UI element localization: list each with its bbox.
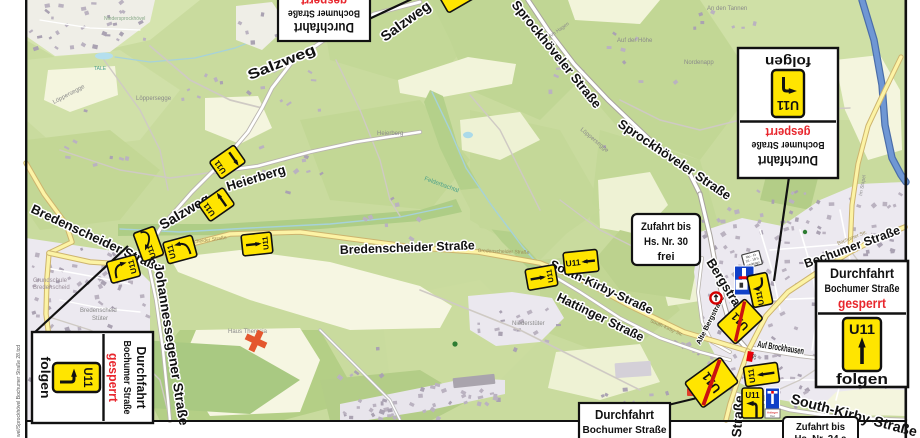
svg-text:Bochumer Straße: Bochumer Straße [121, 341, 133, 415]
svg-text:Bredenscheid: Bredenscheid [80, 308, 117, 314]
svg-text:U11: U11 [260, 236, 270, 250]
svg-text:folgen: folgen [765, 54, 811, 70]
svg-text:Durchfahrt: Durchfahrt [595, 408, 655, 422]
svg-text:U11: U11 [777, 98, 799, 112]
svg-text:U11: U11 [745, 391, 760, 400]
svg-text:gesperrt: gesperrt [838, 296, 886, 311]
svg-text:wel/Sprockhövel Bochumer Straß: wel/Sprockhövel Bochumer Straße 28.tcd [16, 345, 22, 437]
svg-text:Durchfahrt: Durchfahrt [758, 153, 818, 168]
svg-text:Bredenscheid: Bredenscheid [33, 285, 70, 291]
svg-text:Durchfahrt: Durchfahrt [830, 265, 894, 281]
svg-text:An den Tannen: An den Tannen [707, 6, 747, 12]
svg-text:U11: U11 [81, 368, 95, 388]
svg-text:gesperrt: gesperrt [300, 0, 347, 9]
svg-text:frei: frei [658, 251, 675, 263]
svg-text:Hs. Nr. 30: Hs. Nr. 30 [644, 236, 688, 248]
svg-text:Hs. Nr. 24 a: Hs. Nr. 24 a [795, 433, 847, 438]
svg-text:Niederstüter: Niederstüter [512, 321, 545, 327]
svg-text:Bochumer Straße: Bochumer Straße [825, 283, 900, 295]
svg-text:gesperrt: gesperrt [106, 353, 121, 403]
svg-text:Heierberg: Heierberg [377, 131, 403, 137]
svg-text:folgen: folgen [836, 371, 888, 388]
svg-text:Durchfahrt: Durchfahrt [294, 20, 354, 35]
svg-text:Auf der Höhe: Auf der Höhe [617, 38, 653, 44]
svg-text:Durchfahrt: Durchfahrt [134, 347, 149, 410]
svg-text:Niedersprockhövel: Niedersprockhövel [104, 16, 145, 22]
svg-text:Zufahrt bis: Zufahrt bis [641, 221, 691, 233]
svg-text:Zufahrt bis: Zufahrt bis [796, 421, 845, 433]
svg-text:Grundschule: Grundschule [33, 278, 68, 284]
svg-text:U11: U11 [565, 257, 581, 269]
svg-text:Bochumer Straße: Bochumer Straße [583, 425, 667, 436]
svg-text:Löppersegge: Löppersegge [136, 96, 172, 102]
svg-text:gesperrt: gesperrt [765, 125, 811, 140]
svg-text:Nordenapp: Nordenapp [684, 60, 714, 66]
svg-text:U11: U11 [849, 321, 875, 337]
svg-text:Stüter: Stüter [92, 316, 108, 322]
svg-text:folgen: folgen [38, 357, 53, 399]
svg-text:frei: frei [770, 414, 775, 418]
svg-text:TALE: TALE [94, 66, 107, 72]
